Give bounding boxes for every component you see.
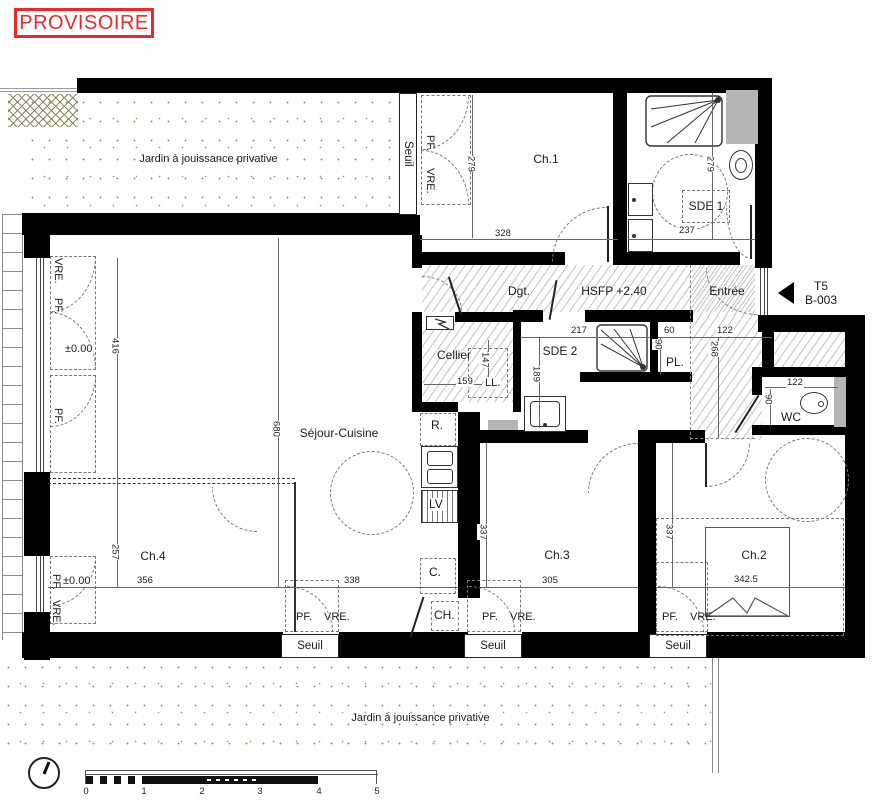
threshold-box: Seuil [281, 634, 339, 658]
dim-line [628, 239, 755, 240]
opening-label-vre: VRE. [50, 600, 62, 626]
window [36, 375, 44, 472]
wall [420, 402, 458, 412]
threshold-box: Seuil [649, 634, 707, 658]
dim-line [521, 337, 650, 338]
garden-top-label: Jardin à jouissance privative [126, 153, 291, 165]
wall [24, 612, 50, 660]
vanity-unit [628, 183, 653, 216]
wall [24, 235, 50, 258]
window [36, 258, 44, 375]
threshold-box: Seuil [464, 634, 522, 658]
wall [399, 215, 420, 235]
removable-partition [48, 478, 295, 484]
room-label-wc: WC [776, 411, 806, 424]
opening-label-vre: VRE. [424, 168, 436, 194]
dim-label: 237 [678, 226, 696, 236]
kitchen-sink [421, 446, 458, 488]
dim-line [692, 337, 772, 338]
opening-label-vre: VRE. [52, 258, 64, 284]
dim-line [480, 587, 638, 588]
terrace-steps [2, 214, 23, 640]
dim-line [48, 587, 295, 588]
door-leaf [705, 443, 707, 487]
wall [752, 425, 845, 435]
door-swing-arc [552, 207, 607, 262]
wall [22, 213, 399, 235]
dim-line [278, 238, 279, 587]
bed-pillow [705, 592, 790, 618]
wall [845, 332, 865, 658]
room-label-cellier: Cellier [432, 349, 476, 362]
room-label-entree: Entrée [704, 285, 750, 298]
level-marker: ±0.00 [62, 576, 91, 587]
dim-label: 279 [465, 156, 477, 172]
dim-label: 122 [716, 326, 734, 336]
dim-line [658, 337, 692, 338]
room-label-ch1: Ch.1 [524, 153, 568, 166]
shower-icon [596, 324, 648, 372]
opening-label-pf: PF. [52, 408, 64, 424]
scale-bar [85, 770, 377, 784]
opening-label-vre: VRE. [510, 611, 536, 623]
entry-zone-boundary [690, 438, 755, 439]
scale-tick: 4 [314, 787, 324, 797]
wall [522, 632, 653, 658]
fixture-label-hob: C. [428, 566, 442, 579]
unit-type: T5 [804, 280, 838, 293]
electric-panel [426, 316, 454, 330]
opening-label-pf: PF. [482, 611, 498, 623]
dim-label: 189 [530, 366, 542, 382]
scale-tick: 1 [139, 787, 149, 797]
opening-label-pf: PF. [662, 611, 678, 623]
wc-corridor-hatch [772, 332, 845, 367]
partition-line [294, 482, 296, 632]
dim-line [656, 587, 845, 588]
fixture-label-dishwasher: LV [428, 498, 444, 511]
room-label-pl: PL. [662, 356, 688, 369]
scale-tick: 3 [255, 787, 265, 797]
wall [22, 632, 283, 658]
dim-label: 416 [109, 338, 121, 354]
wall [513, 310, 521, 412]
opening-label-vre: VRE. [690, 611, 716, 623]
wall [339, 632, 468, 658]
wall [417, 252, 565, 265]
dim-label: 328 [494, 229, 512, 239]
threshold-box: Seuil [399, 93, 417, 215]
wall [580, 372, 692, 382]
dim-label: 337 [477, 524, 489, 540]
room-label-dgt: Dgt. [503, 285, 535, 298]
dim-label: 60 [663, 326, 676, 336]
opening-label-pf: PF. [296, 611, 312, 623]
dim-label: 342.5 [733, 575, 759, 585]
opening-label-pf: PF. [50, 574, 62, 590]
scale-tick: 2 [197, 787, 207, 797]
dim-label: 268 [708, 341, 720, 357]
room-label-sejour: Séjour-Cuisine [294, 427, 384, 440]
turning-circle [765, 438, 849, 522]
wall [613, 252, 740, 265]
wall [752, 377, 762, 395]
garden-bottom-label: Jardin à jouissance privative [338, 712, 503, 724]
floor-plan: PROVISOIRE Jardin à jouissance privative… [0, 0, 877, 800]
dim-label: 257 [109, 544, 121, 560]
turning-circle [330, 451, 414, 535]
room-label-sde2: SDE 2 [537, 345, 583, 358]
wall [638, 430, 705, 443]
wall [585, 310, 693, 322]
fixture-label-boiler: CH. [433, 609, 456, 622]
room-label-ch3: Ch.3 [537, 549, 577, 562]
wall [752, 367, 845, 377]
dim-label: 338 [343, 576, 361, 586]
door-swing-arc [212, 487, 257, 532]
room-label-ch2: Ch.2 [734, 549, 774, 562]
dim-label: 279 [704, 156, 716, 172]
fixture-label-washer: LL. [484, 377, 501, 389]
wall [77, 78, 772, 93]
entry-zone-boundary [690, 265, 691, 440]
dim-label: 159 [456, 377, 474, 387]
north-compass-icon [28, 757, 60, 789]
room-label-sde1: SDE 1 [684, 200, 728, 213]
duct-shaft [726, 90, 758, 144]
unit-ref: B-003 [798, 294, 844, 307]
dim-line [486, 443, 487, 587]
fixture-label-fridge: R. [430, 419, 444, 432]
ceiling-height-label: HSFP +2.40 [578, 285, 650, 298]
level-marker: ±0.00 [64, 344, 93, 355]
room-label-ch4: Ch.4 [133, 550, 173, 563]
dim-label: 122 [786, 378, 804, 388]
dim-label: 90 [762, 394, 774, 405]
dim-line [295, 587, 458, 588]
dim-label: 680 [270, 421, 282, 437]
wall [758, 315, 865, 332]
vanity-unit [628, 219, 653, 252]
toilet-icon [729, 150, 753, 180]
dim-line [117, 258, 118, 587]
opening-label-pf: PF. [52, 298, 64, 314]
opening-label-vre: VRE. [324, 611, 350, 623]
dim-label: 90 [652, 339, 664, 350]
door-swing-arc [588, 443, 638, 493]
door-leaf [750, 205, 752, 259]
door-swing-arc [706, 443, 750, 487]
dim-label: 147 [479, 352, 491, 368]
front-door-threshold [760, 268, 768, 315]
scale-tick: 5 [372, 787, 382, 797]
dim-line [672, 443, 673, 587]
dim-label: 305 [541, 576, 559, 586]
wall [412, 312, 422, 412]
dim-label: 217 [570, 326, 588, 336]
door-leaf [607, 206, 609, 262]
dim-label: 356 [136, 576, 154, 586]
site-boundary-line [0, 88, 79, 92]
washbasin [524, 396, 566, 432]
scale-tick: 0 [81, 787, 91, 797]
wall [24, 472, 50, 556]
wall [613, 93, 627, 252]
opening-label-pf: PF. [424, 135, 436, 151]
wall [638, 443, 656, 643]
wall [650, 322, 658, 378]
dim-line [420, 239, 618, 240]
provisional-stamp: PROVISOIRE [14, 8, 154, 38]
duct-shaft [488, 420, 518, 430]
garden-bottom [0, 658, 714, 753]
entrance-arrow-icon [778, 282, 794, 304]
window [36, 556, 44, 612]
wall [458, 430, 588, 443]
duct-shaft [834, 377, 846, 427]
dim-label: 337 [663, 524, 675, 540]
wall [455, 312, 513, 322]
